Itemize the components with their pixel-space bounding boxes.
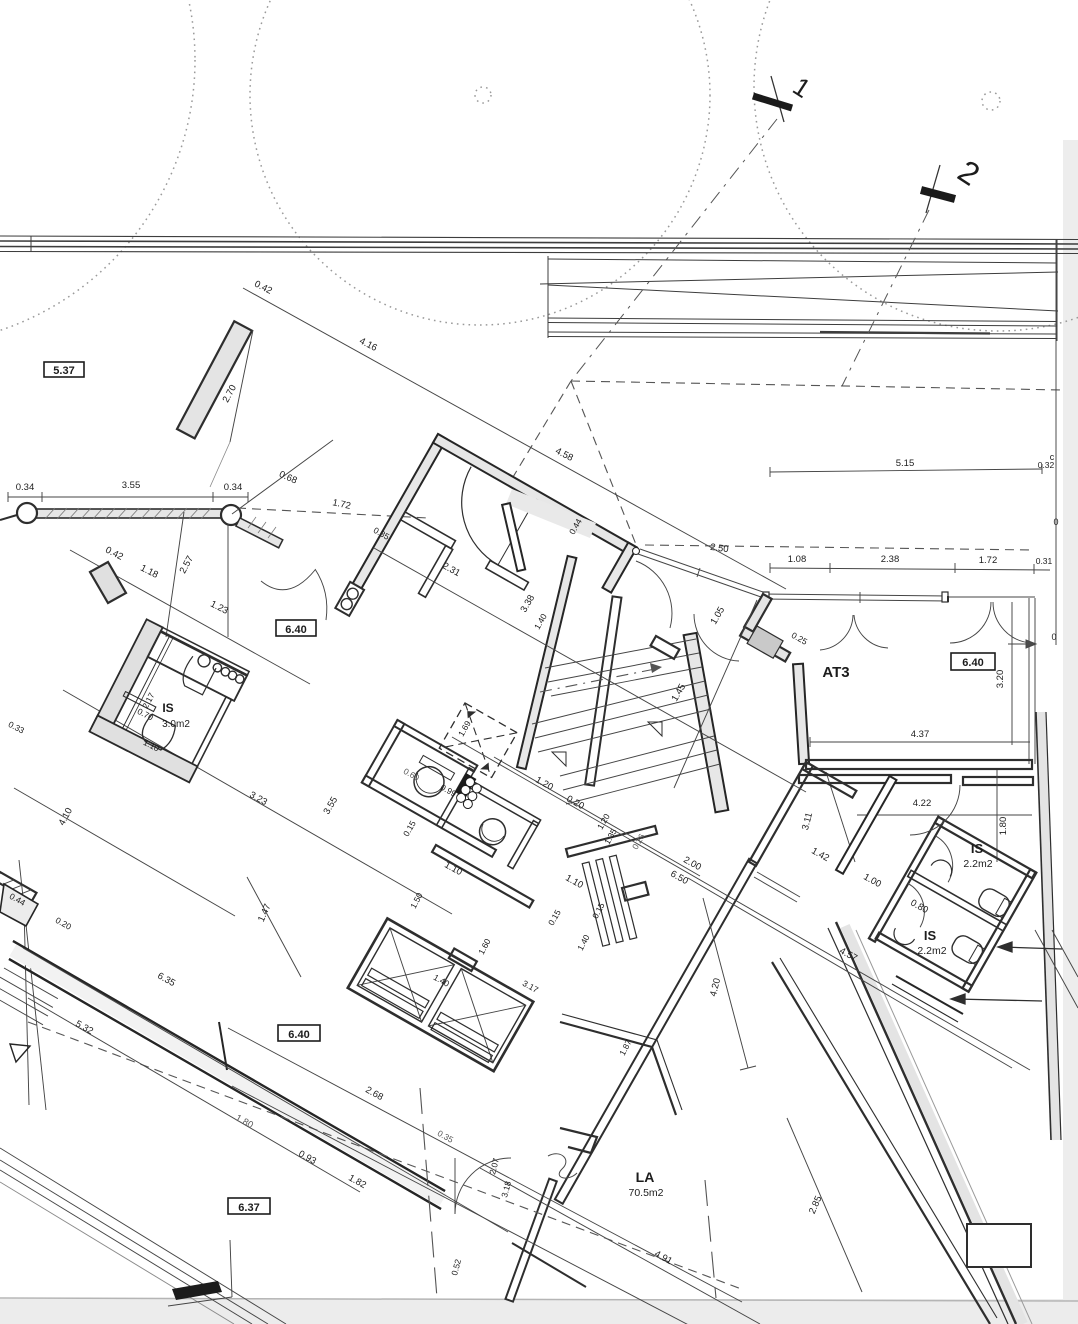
svg-text:AT3: AT3 xyxy=(822,664,849,681)
svg-text:5.37: 5.37 xyxy=(53,365,74,377)
svg-text:1.72: 1.72 xyxy=(979,555,998,566)
svg-text:70.5m2: 70.5m2 xyxy=(628,1187,663,1199)
svg-text:3.55: 3.55 xyxy=(122,480,141,491)
svg-text:LA: LA xyxy=(636,1169,655,1185)
svg-text:4.37: 4.37 xyxy=(911,729,930,740)
svg-text:4.22: 4.22 xyxy=(913,798,932,809)
svg-text:IS: IS xyxy=(971,841,984,856)
svg-text:3.20: 3.20 xyxy=(995,670,1006,689)
svg-text:0: 0 xyxy=(1051,632,1056,642)
svg-text:2.2m2: 2.2m2 xyxy=(963,858,992,870)
svg-text:1.80: 1.80 xyxy=(998,817,1009,836)
svg-text:0.34: 0.34 xyxy=(224,482,243,493)
svg-text:6.37: 6.37 xyxy=(238,1202,259,1214)
svg-text:6.40: 6.40 xyxy=(288,1029,309,1041)
svg-text:3.0m2: 3.0m2 xyxy=(162,719,190,730)
svg-text:5.15: 5.15 xyxy=(896,458,915,469)
svg-text:c: c xyxy=(1050,452,1055,462)
svg-text:6.40: 6.40 xyxy=(285,624,306,636)
svg-text:IS: IS xyxy=(162,701,173,715)
svg-text:0: 0 xyxy=(1053,517,1058,527)
svg-text:2.2m2: 2.2m2 xyxy=(917,945,946,957)
svg-text:0.31: 0.31 xyxy=(1036,556,1053,566)
svg-text:0.34: 0.34 xyxy=(16,482,35,493)
svg-text:2.38: 2.38 xyxy=(881,554,900,565)
svg-text:1.08: 1.08 xyxy=(788,554,807,565)
svg-text:IS: IS xyxy=(924,928,937,943)
svg-text:6.40: 6.40 xyxy=(962,657,983,669)
